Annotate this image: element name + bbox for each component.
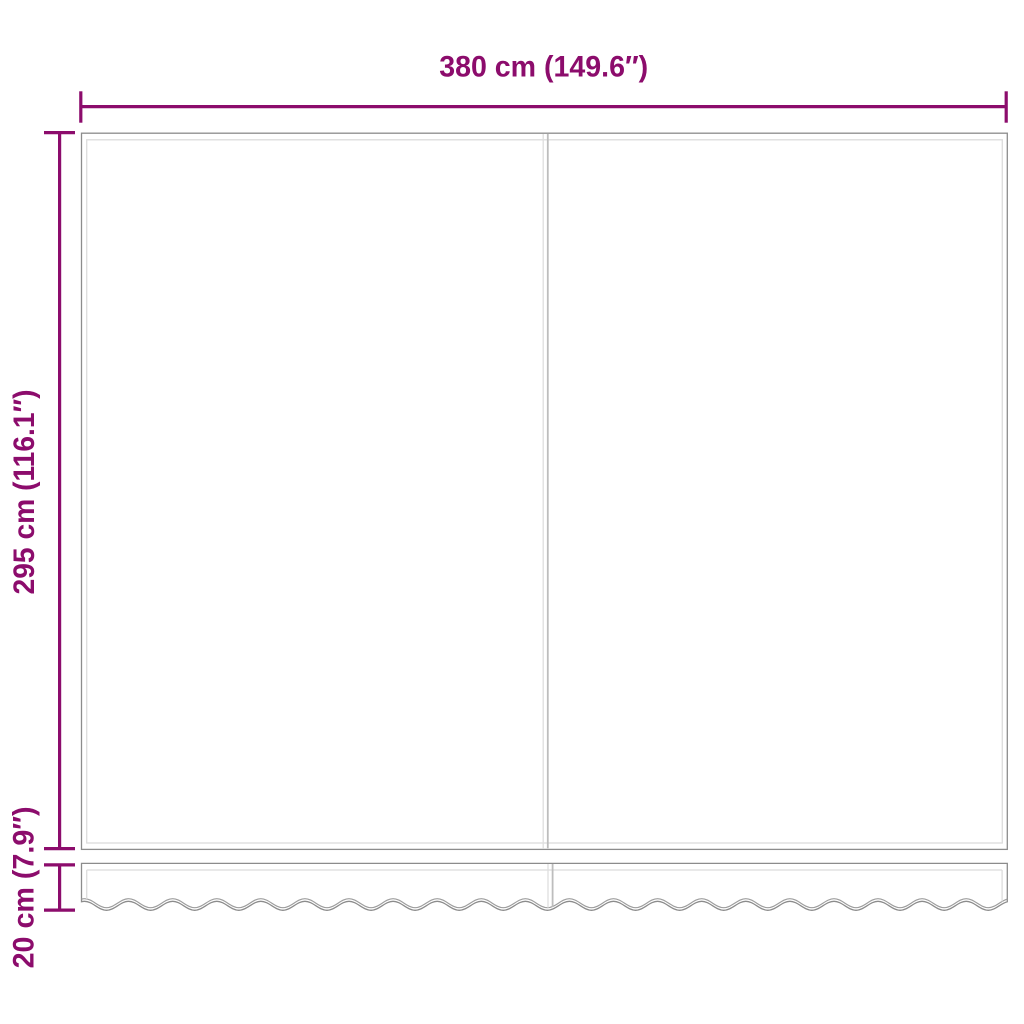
svg-text:20 cm (7.9″): 20 cm (7.9″)	[8, 806, 41, 968]
svg-text:380 cm (149.6″): 380 cm (149.6″)	[439, 51, 648, 84]
svg-text:295 cm (116.1″): 295 cm (116.1″)	[8, 390, 41, 595]
